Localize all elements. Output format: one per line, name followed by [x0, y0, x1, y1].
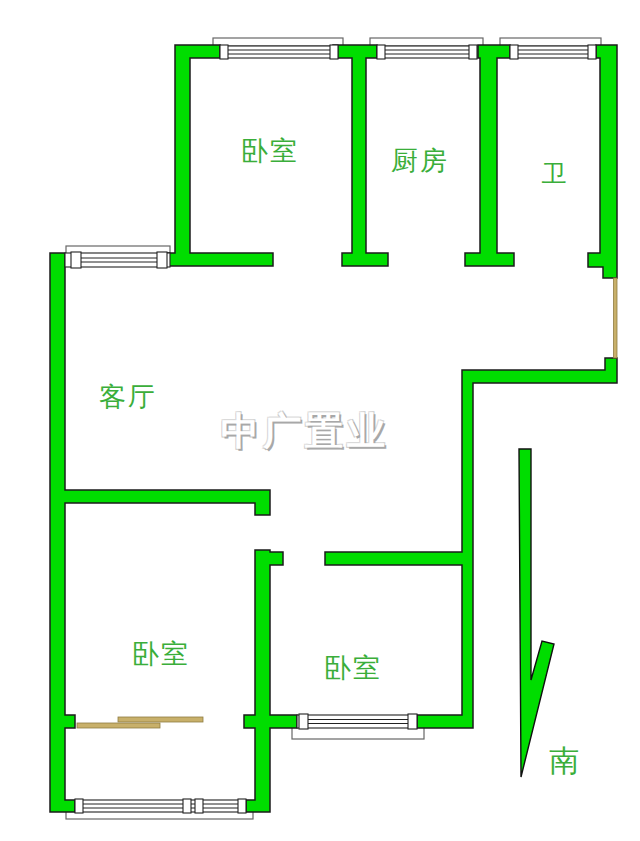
wall-bottom-bedrooms-divider [244, 550, 297, 812]
balcony-door-line [614, 278, 618, 358]
room-label-bathroom: 卫 [542, 161, 569, 186]
window-kitchen [377, 45, 477, 59]
sill-kitchen [370, 38, 483, 46]
room-label-living-room: 客厅 [99, 384, 157, 411]
sill-bottom-middle-bedroom [292, 727, 424, 739]
window-living-room [65, 252, 170, 268]
window-bathroom [510, 45, 596, 59]
room-label-kitchen: 厨房 [391, 148, 449, 175]
room-label-bedroom-top-left: 卧室 [241, 138, 299, 165]
room-label-bedroom-bottom-left: 卧室 [132, 641, 190, 668]
floorplan-canvas: 卧室 厨房 卫 客厅 卧室 卧室 中广置业 南 [0, 0, 640, 841]
sliding-door-leaf-1 [118, 717, 203, 722]
wall-bedroom-kitchen-divider [333, 45, 388, 266]
window-top-bedroom [220, 45, 338, 59]
sliding-door-leaf-2 [77, 723, 160, 728]
room-label-bedroom-bottom-middle: 卧室 [324, 655, 382, 682]
wall-kitchen-bath-divider [465, 45, 514, 266]
window-bottom-middle-bedroom [297, 714, 417, 729]
compass-south-label: 南 [549, 746, 579, 776]
sill-top-bedroom [213, 38, 343, 46]
window-bottom-left-bedroom [75, 799, 246, 813]
south-arrow-icon [519, 449, 554, 777]
wall-outer-right [588, 45, 617, 278]
agency-watermark: 中广置业 [221, 412, 389, 450]
